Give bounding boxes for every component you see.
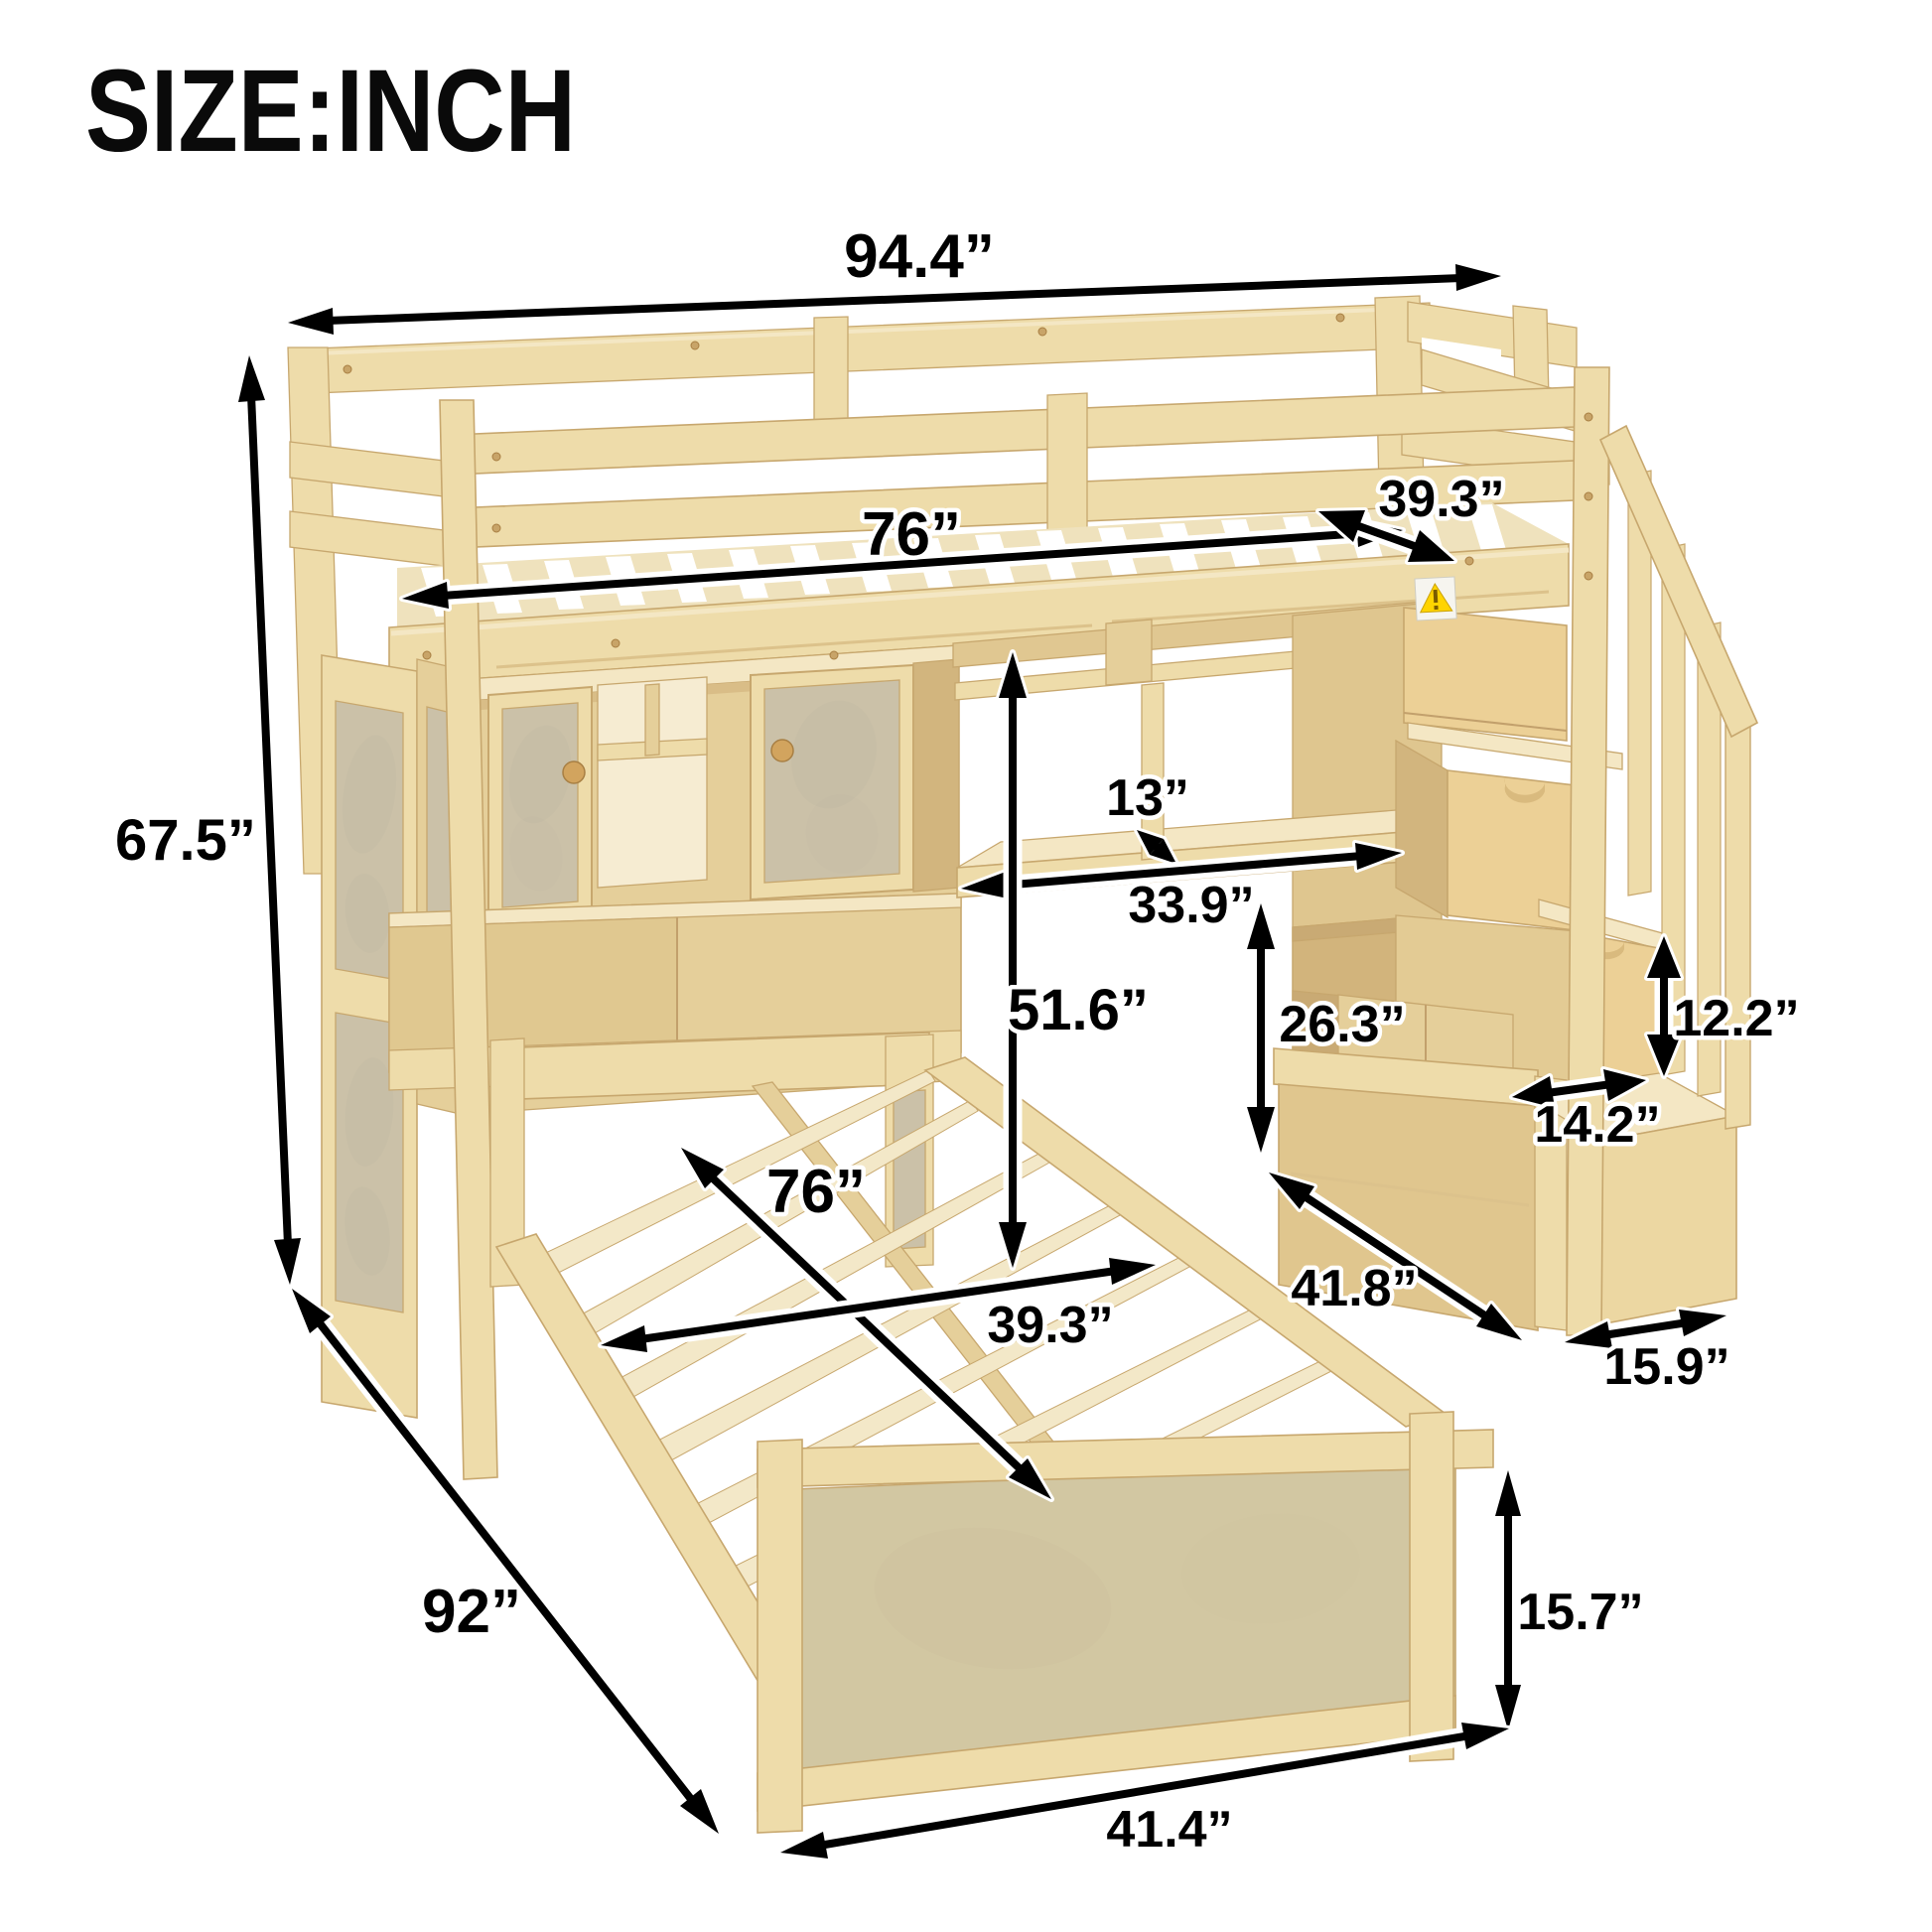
svg-text:33.9”: 33.9” [1128, 877, 1254, 934]
svg-text:14.2”: 14.2” [1534, 1096, 1660, 1154]
svg-text:SIZE:INCH: SIZE:INCH [85, 46, 576, 177]
svg-text:51.6”: 51.6” [1008, 978, 1149, 1042]
svg-text:67.5”: 67.5” [115, 808, 256, 873]
svg-text:76”: 76” [862, 500, 961, 569]
svg-text:76”: 76” [766, 1158, 866, 1226]
svg-text:41.8”: 41.8” [1291, 1260, 1417, 1317]
svg-text:15.9”: 15.9” [1603, 1338, 1729, 1396]
svg-text:15.7”: 15.7” [1517, 1584, 1643, 1641]
svg-text:12.2”: 12.2” [1673, 990, 1799, 1047]
svg-text:39.3”: 39.3” [987, 1297, 1113, 1354]
svg-text:39.3”: 39.3” [1378, 471, 1504, 528]
svg-text:41.4”: 41.4” [1106, 1801, 1232, 1859]
svg-text:92”: 92” [422, 1578, 521, 1646]
svg-text:94.4”: 94.4” [844, 222, 995, 291]
svg-text:13”: 13” [1106, 769, 1189, 827]
svg-text:26.3”: 26.3” [1279, 996, 1405, 1053]
